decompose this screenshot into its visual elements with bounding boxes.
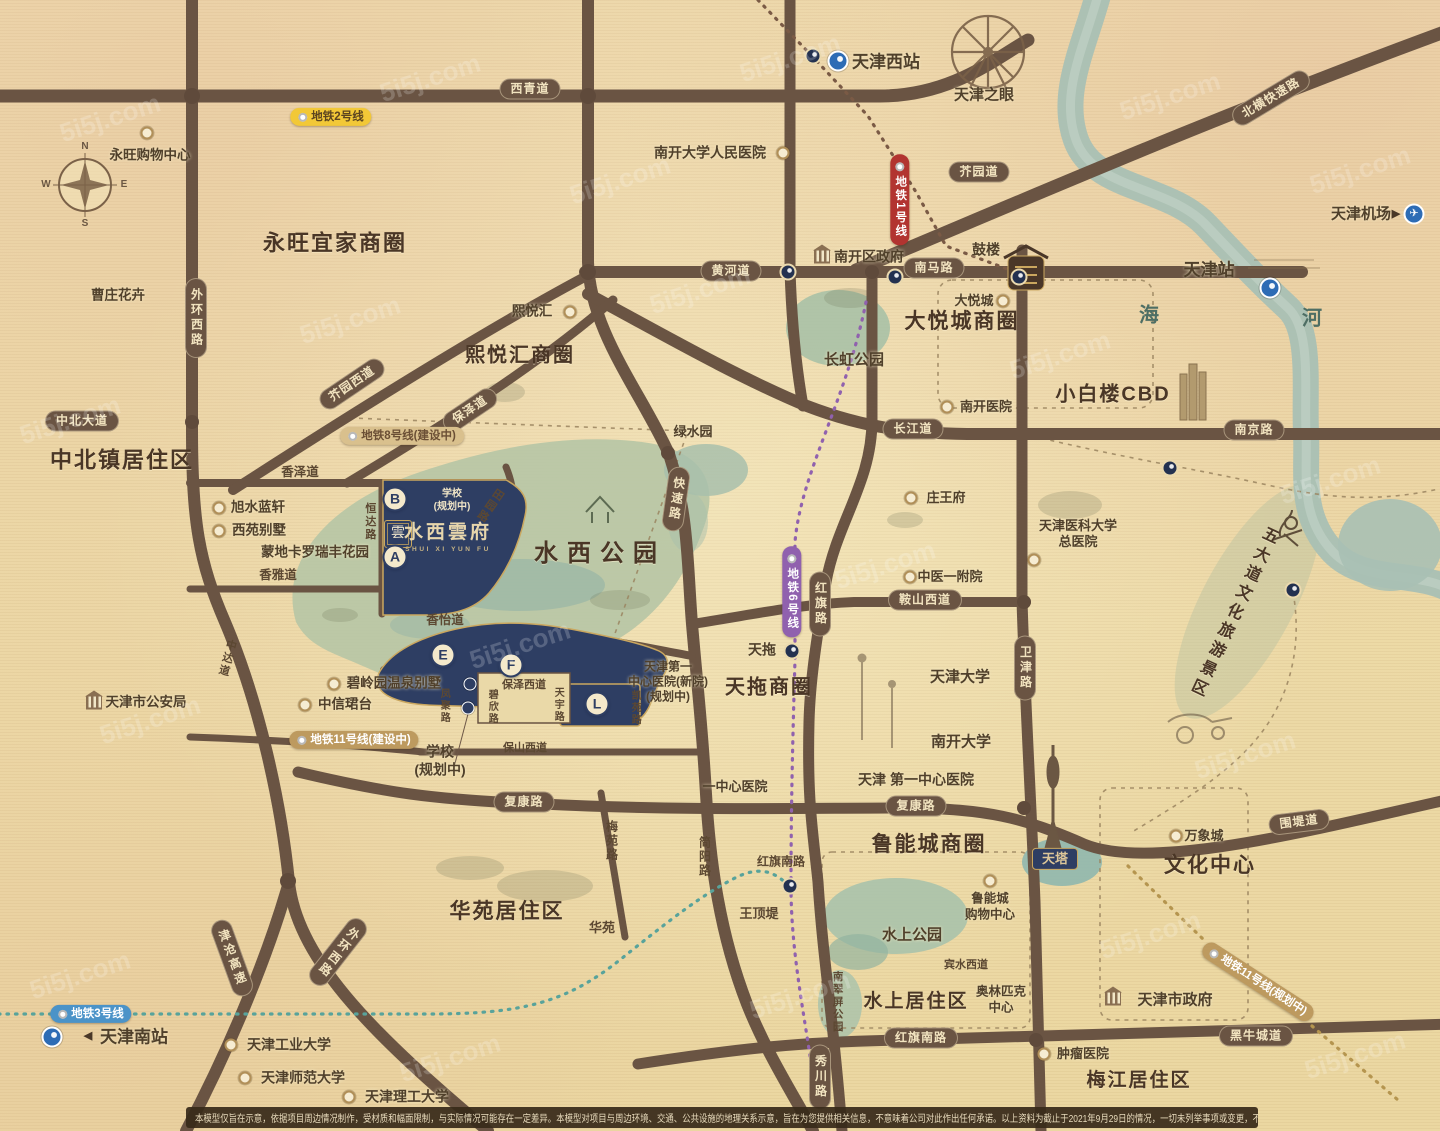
district-title-tiantuo: 天拖商圈 [725,676,813,701]
road-badge-hongqilu: 红旗路 [809,572,831,637]
poi-zhongliu-hospital: 肿瘤医院 [1057,1046,1109,1062]
poi-shifan-university: 天津师范大学 [261,1069,345,1087]
poi-mengdikaluo: 蒙地卡罗瑞丰花园 [261,545,369,562]
compass-label-w: W [41,179,50,192]
south-station-arrow-icon: ◀ [84,1030,92,1044]
district-title-xiaobailou: 小白楼CBD [1055,383,1170,408]
road-badge-beiheng: 北横快速路 [1228,67,1313,130]
poi-tianjin-station: 天津站 [1184,259,1235,280]
poi-tianjin-university: 天津大学 [930,669,990,688]
station-tianjinxi-metro-icon [828,51,849,72]
road-badge-weijinlu: 卫津路 [1014,636,1036,701]
poi-ligong-university: 天津理工大学 [365,1088,449,1106]
road-badge-heiniuchengdao: 黑牛城道 [1219,1026,1293,1047]
road-label-xiangzedao: 香泽道 [281,465,319,481]
poi-olympic-center: 奥林匹克 中心 [976,984,1026,1015]
poi-xiyuehui: 熙悦汇 [512,304,553,321]
poi-tianjin-eye: 天津之眼 [954,87,1014,106]
nankai-hospital-icon [941,401,954,414]
compass-label-n: N [81,141,88,154]
poi-public-security: 天津市公安局 [106,695,187,712]
poi-nankai-university: 南开大学 [931,734,991,753]
luneng-mall-icon [984,875,997,888]
road-badge-xiqingdao: 西青道 [499,79,560,100]
poi-tianjin-airport: 天津机场 [1331,206,1391,225]
watermark: 5i5j.com [1005,323,1114,386]
disclaimer-text: 本模型仅旨在示意，依据项目周边情况制作，受材质和幅面限制，与实际情况可能存在一定… [195,1110,1258,1125]
watermark: 5i5j.com [1300,1023,1409,1086]
poi-label-wangdingdi: 王顶堤 [739,906,778,922]
airport-arrow-icon: ▶ [1392,208,1400,222]
poi-first-central-hospital: 天津 第一中心医院 [858,771,974,789]
station-tianjinnan-metro-icon [42,1027,63,1048]
zhongliu-icon [1038,1048,1051,1061]
project-logo-latin: SHUI XI YUN FU [405,546,491,554]
metro-line11-badge-planned: 地铁11号线(规划中) [1199,939,1317,1025]
station-tiantuo-icon [784,643,801,660]
road-badge-jieyuanxidao: 芥园西道 [315,355,388,414]
station-metro11-a-icon [464,678,477,691]
station-gulou-east-icon [1011,269,1028,286]
road-label-fengjulu: 凤聚路 [437,688,450,724]
district-title-huayuan: 华苑居住区 [450,899,565,925]
plot-marker-e: E [431,643,456,668]
poi-wanxiangcheng: 万象城 [1184,828,1223,844]
watermark: 5i5j.com [395,1026,504,1089]
dayuecheng-icon [997,295,1010,308]
road-badge-fukanglu-east: 复康路 [885,796,946,817]
poi-dayuecheng: 大悦城 [954,293,993,309]
citygov-building-icon [1105,993,1121,1006]
wanxiangcheng-icon [1170,830,1183,843]
district-title-wudadao: 五大道文化旅游景区 [1183,522,1281,702]
watermark: 5i5j.com [295,288,404,351]
station-nanshi-icon [887,269,904,286]
river-label-he: 河 [1302,307,1324,332]
poi-gongye-university: 天津工业大学 [247,1036,331,1054]
district-title-luneng: 鲁能城商圈 [872,832,987,858]
metro-line6-badge: 地铁6号线 [782,546,801,637]
river-label-hai: 海 [1139,304,1161,329]
nankai-renmin-icon [777,147,790,160]
road-badge-kuaisulu: 快速路 [661,465,692,532]
project-logo-name: 水西雲府 [404,521,492,545]
road-badge-weidadao: 围堤道 [1267,808,1330,836]
poi-city-gov: 天津市政府 [1137,992,1212,1011]
road-label-meiyuanlu: 梅苑路 [604,820,619,862]
metro-line2-badge: 地铁2号线 [290,108,371,126]
disclaimer-bar: 本模型仅旨在示意，依据项目周边情况制作，受材质和幅面限制，与实际情况可能存在一定… [186,1107,1258,1128]
poi-nankai-renmin-hospital: 南开大学人民医院 [654,144,766,162]
road-badge-nanmalu: 南马路 [903,258,964,279]
poi-yizhongxin-hospital: 一中心医院 [702,779,767,795]
station-tianjinzhan-metro-icon [1260,278,1281,299]
watermark: 5i5j.com [830,533,939,596]
park-label-shuishang: 水上公园 [882,927,942,946]
compass-label-e: E [121,179,128,192]
ligong-univ-icon [343,1091,356,1104]
district-title-meijiang: 梅江居住区 [1086,1069,1191,1093]
metro-line3-badge: 地铁3号线 [50,1005,131,1023]
plot-marker-a: A [383,545,408,570]
watermark: 5i5j.com [1275,448,1384,511]
district-title-zhongbei: 中北镇居住区 [50,446,194,474]
poi-yike-hospital: 天津医科大学 总医院 [1039,518,1117,551]
poi-tianjin-west-station: 天津西站 [852,51,920,72]
park-label-changhong: 长虹公园 [824,352,884,371]
district-title-dayuecheng: 大悦城商圈 [905,309,1020,335]
district-title-xiyuehui: 熙悦汇商圈 [465,344,575,369]
road-label-hengdalu: 恒达路 [362,503,376,542]
poi-yongwang-mall: 永旺购物中心 [110,148,191,165]
poi-caozhuang-huahui: 曹庄花卉 [91,288,145,305]
watermark: 5i5j.com [375,46,484,109]
watermark: 5i5j.com [1115,64,1224,127]
station-metro11-b-icon [462,702,475,715]
poi-zhongyi-hospital: 中医一附院 [917,569,982,585]
poi-zhuangwangfu: 庄王府 [926,490,965,506]
poi-first-hospital-new: 天津第一 中心医院(新院) (规划中) [628,660,708,705]
road-badge-xiuchuanlu: 秀川路 [809,1045,831,1110]
watermark: 5i5j.com [25,943,134,1006]
plot-school-label: 学校 (规划中) [434,489,471,514]
nankaigov-building-icon [814,251,830,264]
map-canvas: 雲 水西雲府 SHUI XI YUN FU NWES永旺宜家商圈中北镇居住区熙悦… [0,0,1440,1131]
gonganju-building-icon [86,697,102,710]
road-badge-nanjinglu: 南京路 [1223,420,1284,441]
road-badge-waihuanxilu-south: 外环西路 [305,914,372,991]
plot-marker-b: B [383,487,408,512]
road-badge-huanghedao: 黄河道 [700,261,761,282]
road-badge-hongqinanlu: 红旗南路 [884,1028,958,1049]
xiyuan-icon [213,525,226,538]
road-label-xiangyidao: 香怡道 [426,613,464,629]
metro-line1-badge: 地铁1号线 [890,154,909,245]
poi-nankai-hospital: 南开医院 [960,399,1012,415]
road-label-baoshanxidao: 保山西道 [503,742,547,756]
road-label-xiangyadao: 香雅道 [259,568,297,584]
road-badge-jincang-expwy: 津沧高速 [208,917,256,1000]
yike-hospital-icon [1028,554,1041,567]
road-badge-anshanxidao: 鞍山西道 [888,590,962,611]
watermark: 5i5j.com [1095,903,1204,966]
xiyuehui-icon [564,306,577,319]
poi-bilingyuan-villa: 碧岭园温泉别墅 [347,676,442,693]
road-label-hongqinanlu: 红旗南路 [757,855,805,870]
road-badge-fukanglu-west: 复康路 [493,792,554,813]
metro-line11-badge-construction: 地铁11号线(建设中) [289,731,418,749]
poi-label-huayuan: 华苑 [589,920,615,936]
poi-gulou: 鼓楼 [972,241,1000,259]
plot-marker-l: L [585,692,610,717]
road-label-zhongdadao: 中达道 [214,637,237,678]
district-title-yongwang: 永旺宜家商圈 [263,229,407,257]
poi-zhongxin-juntai: 中信珺台 [318,697,372,714]
road-badge-zhongbeidadao: 中北大道 [45,411,119,432]
yongwang-mall-icon [141,127,154,140]
park-label-nancuiping: 南翠屏公园 [830,971,843,1034]
gongye-univ-icon [225,1039,238,1052]
metro-line8-badge: 地铁8号线(建设中) [340,427,464,445]
zhuangwangfu-icon [905,492,918,505]
station-hongqinanlu-icon [782,878,799,895]
watermark: 5i5j.com [55,86,164,149]
poi-luneng-mall: 鲁能城 购物中心 [965,891,1015,922]
map-labels-layer: 雲 水西雲府 SHUI XI YUN FU NWES永旺宜家商圈中北镇居住区熙悦… [0,0,1440,1131]
airport-roundel-icon: ✈ [1404,204,1425,225]
watermark: 5i5j.com [1190,723,1299,786]
zhongxin-icon [299,699,312,712]
watermark: 5i5j.com [1305,138,1414,201]
xushui-icon [213,502,226,515]
zhongyi-icon [904,571,917,584]
road-badge-waihuanxilu-north: 外环西路 [185,278,207,358]
station-junction-west-icon [805,48,822,65]
station-wudadao-north-icon [1162,460,1179,477]
station-huanghedao-icon [780,264,797,281]
park-label-lvshuiyuan: 绿水园 [673,424,712,440]
poi-tianjin-south-station: 天津南站 [100,1026,168,1047]
district-title-shuishang: 水上居住区 [863,990,968,1014]
poi-tiantuo: 天拖 [748,641,776,659]
park-title-shuixi: 水西公园 [534,539,666,569]
road-badge-jieyuandao: 芥园道 [948,162,1009,183]
poi-tianta: 天塔 [1032,848,1078,870]
road-label-bixinlu: 碧欣路 [485,689,498,725]
plot-marker-f: F [499,653,524,678]
road-label-binshuixidao: 宾水西道 [944,959,988,973]
bilingyuan-icon [328,678,341,691]
road-label-baozexidao: 保泽西道 [502,679,546,693]
poi-xiyuan-villa: 西苑别墅 [232,523,286,540]
road-label-tianyulu: 天宇路 [551,687,564,723]
compass-label-s: S [82,218,89,231]
station-wudadao-east-icon [1285,582,1302,599]
poi-school-planned: 学校 (规划中) [414,744,465,779]
road-badge-changjiangdao: 长江道 [882,419,943,440]
shifan-univ-icon [239,1072,252,1085]
road-label-tianyuanlu: 田园路 [472,485,506,525]
district-title-wenhua: 文化中心 [1164,853,1256,879]
poi-xushui-lanxuan: 旭水蓝轩 [231,500,285,517]
poi-nankai-gov: 南开区政府 [834,248,904,266]
road-label-jianyanglu: 简阳路 [697,836,712,878]
